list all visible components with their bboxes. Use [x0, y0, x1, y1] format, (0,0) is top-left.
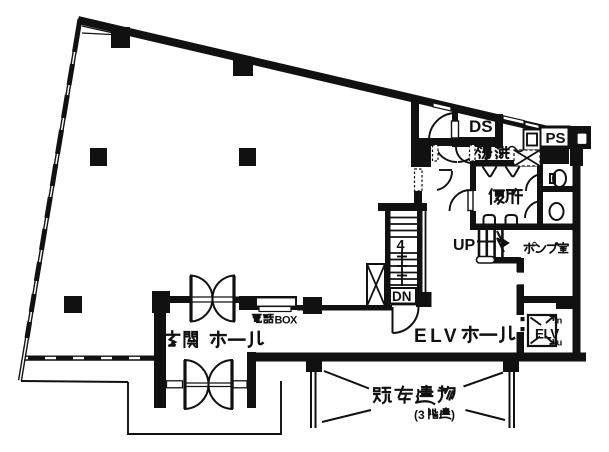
svg-text:(3: (3	[414, 408, 425, 422]
svg-text:ELV: ELV	[414, 326, 460, 347]
svg-text:n: n	[557, 316, 563, 327]
svg-text:): )	[451, 408, 455, 422]
svg-text:BOX: BOX	[275, 315, 299, 327]
svg-text:DS: DS	[469, 117, 493, 136]
svg-text:4: 4	[397, 238, 405, 254]
svg-text:UP: UP	[453, 237, 476, 254]
svg-text:PS: PS	[546, 130, 566, 147]
svg-text:u: u	[557, 338, 563, 349]
svg-text:DN: DN	[392, 289, 412, 304]
